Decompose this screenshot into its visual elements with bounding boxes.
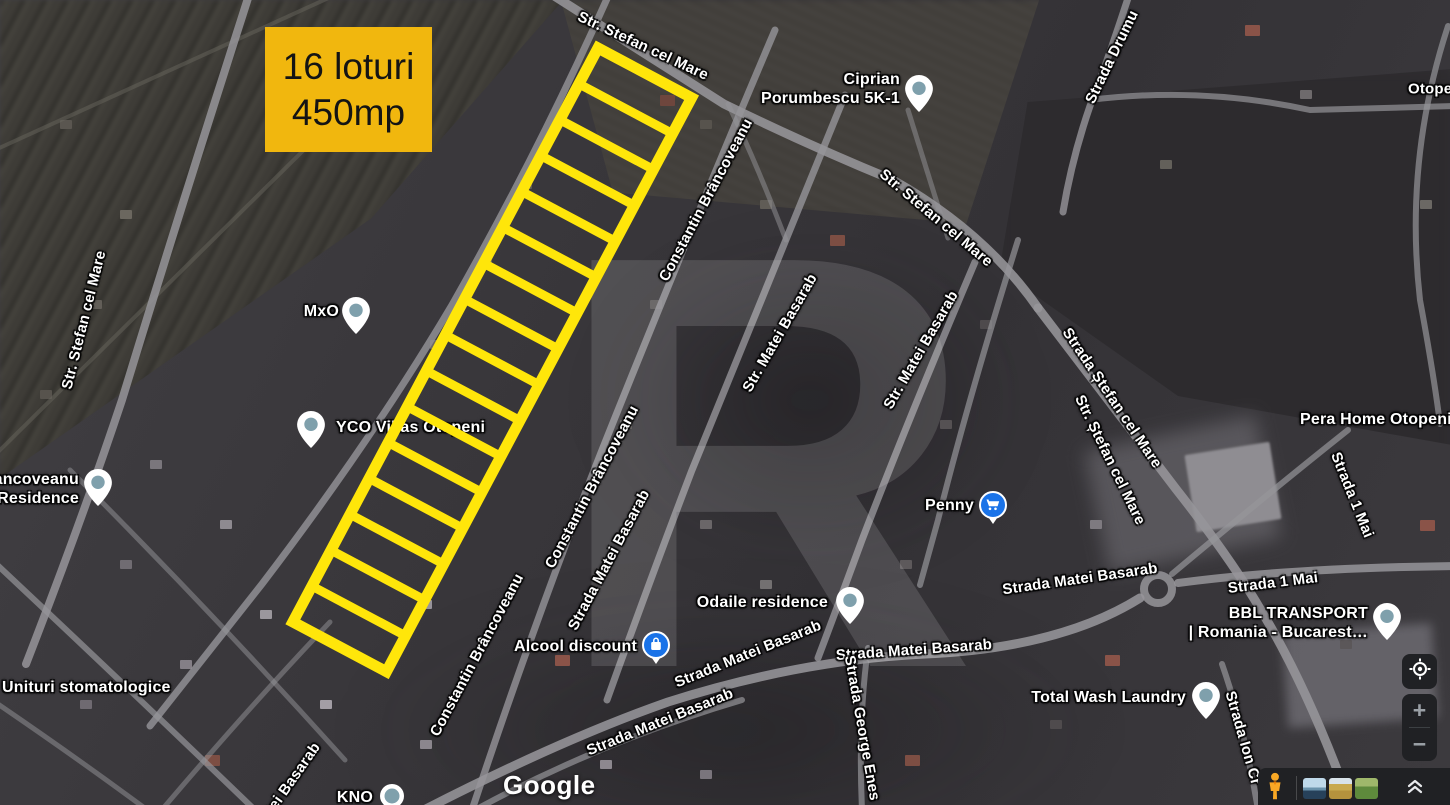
google-logo[interactable]: Google	[503, 770, 596, 801]
pegman-icon	[1264, 771, 1286, 805]
zoom-in-button[interactable]: +	[1402, 694, 1437, 727]
lot-area-text: 450mp	[292, 92, 405, 134]
map-canvas[interactable]: R Str. Stefan cel MareStr. Stefan cel Ma…	[0, 0, 1450, 805]
layer-thumbnail-field[interactable]	[1329, 778, 1352, 799]
my-location-button[interactable]	[1402, 654, 1437, 689]
plot-outline	[0, 0, 1450, 805]
layer-thumbnail-coastline[interactable]	[1303, 778, 1326, 799]
layer-thumbnail-grass[interactable]	[1355, 778, 1378, 799]
double-chevron-up-icon	[1405, 777, 1425, 799]
imagery-bar	[1258, 768, 1450, 805]
pegman-button[interactable]	[1258, 771, 1292, 805]
my-location-icon	[1409, 658, 1431, 685]
zoom-out-button[interactable]: −	[1402, 728, 1437, 761]
lot-count-text: 16 loturi	[283, 46, 415, 88]
collapse-button[interactable]	[1405, 777, 1425, 799]
bar-divider	[1296, 776, 1297, 800]
lot-info-box: 16 loturi 450mp	[265, 27, 432, 152]
zoom-control: + −	[1402, 694, 1437, 761]
